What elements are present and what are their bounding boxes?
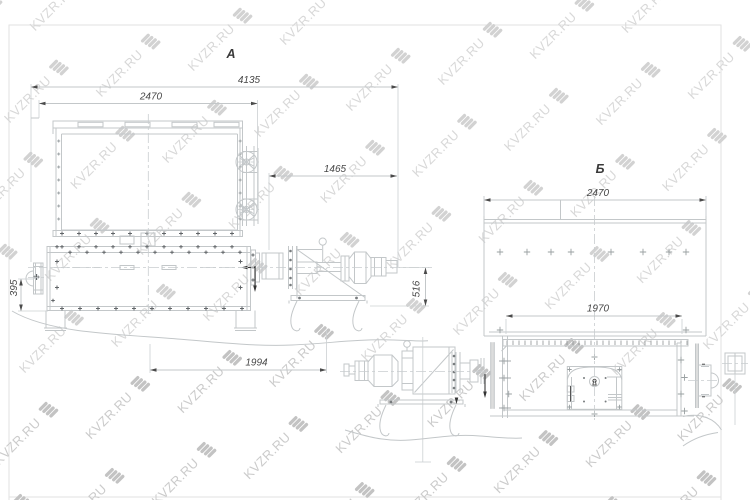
svg-text:1970: 1970 xyxy=(587,304,610,315)
svg-text:Б: Б xyxy=(596,162,605,176)
svg-text:1465: 1465 xyxy=(324,164,347,175)
svg-text:2470: 2470 xyxy=(586,188,610,199)
svg-text:А: А xyxy=(225,47,235,61)
svg-text:516: 516 xyxy=(412,280,423,297)
svg-text:2470: 2470 xyxy=(139,92,163,103)
svg-text:4135: 4135 xyxy=(238,75,261,86)
svg-text:395: 395 xyxy=(9,279,20,296)
svg-text:1994: 1994 xyxy=(245,358,268,369)
